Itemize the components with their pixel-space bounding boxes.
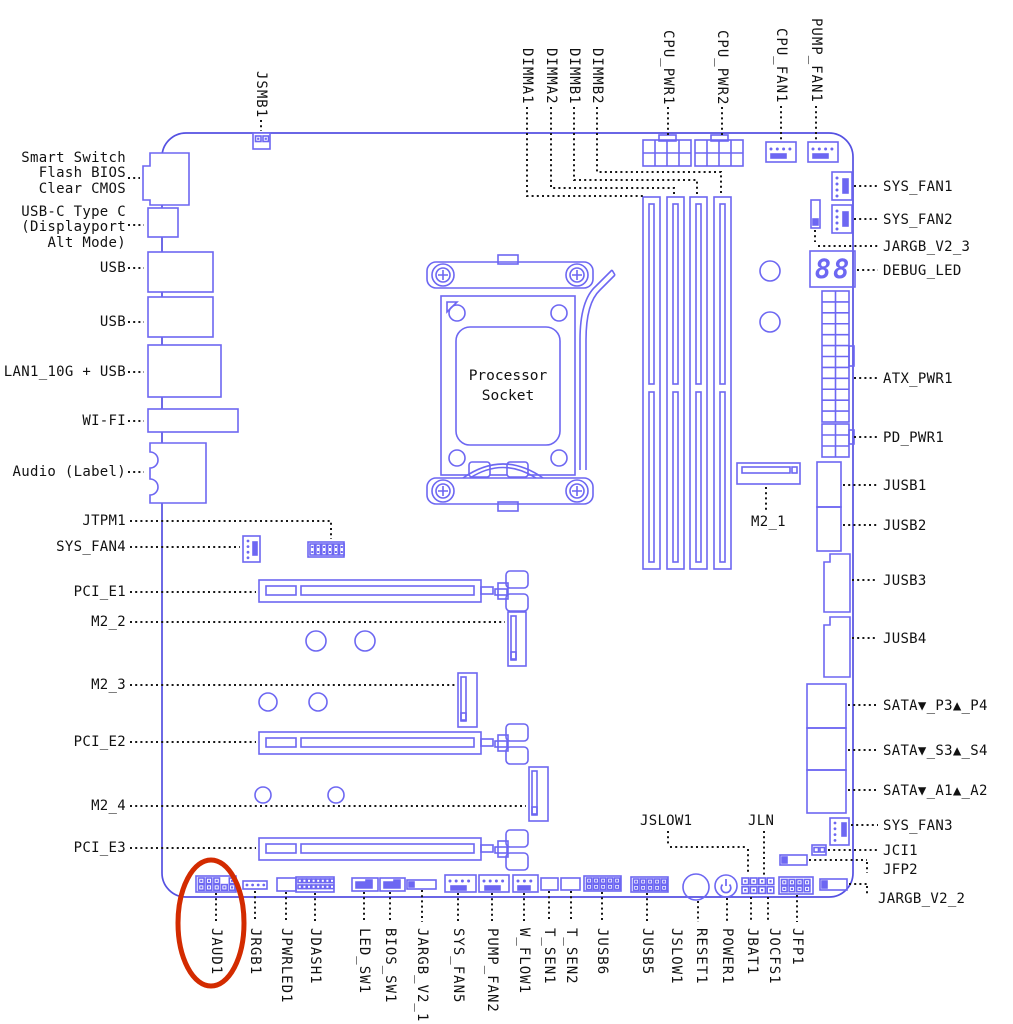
label-led-sw1: LED_SW1 (354, 928, 374, 994)
label-sata-a1-a2: SATA▼_A1▲_A2 (883, 783, 988, 799)
label-jargb-v2-1: JARGB_V2_1 (412, 928, 432, 1022)
label-jslow1-inner: JSLOW1 (640, 813, 692, 829)
label-jdash1: JDASH1 (305, 928, 325, 985)
label-jslow1: JSLOW1 (666, 928, 686, 985)
label-jbat1: JBAT1 (742, 928, 762, 975)
label-jpwrled1: JPWRLED1 (276, 928, 296, 1003)
label-m2-1-inner: M2_1 (751, 514, 786, 530)
label-jtpm1: JTPM1 (0, 514, 126, 529)
label-sys-fan3: SYS_FAN3 (883, 818, 953, 834)
label-t-sen2: T_SEN2 (561, 928, 581, 985)
label-jfp1: JFP1 (787, 928, 807, 966)
label-debug-led: DEBUG_LED (883, 263, 962, 279)
label-bios-sw1: BIOS_SW1 (380, 928, 400, 1003)
label-m2-4: M2_4 (0, 799, 126, 814)
label-jargb-v2-2: JARGB_V2_2 (878, 891, 965, 907)
label-power1: POWER1 (717, 928, 737, 985)
label-t-sen1: T_SEN1 (539, 928, 559, 985)
label-w-flow1: W_FLOW1 (514, 928, 534, 994)
label-jusb1: JUSB1 (883, 478, 927, 494)
label-pci-e2: PCI_E2 (0, 735, 126, 750)
label-jfp2: JFP2 (883, 862, 918, 878)
processor-socket-label: ProcessorSocket (441, 366, 575, 406)
label-jargb-v2-3: JARGB_V2_3 (883, 239, 970, 255)
label-jocfs1: JOCFS1 (764, 928, 784, 985)
label-pci-e1: PCI_E1 (0, 585, 126, 600)
label-pci-e3: PCI_E3 (0, 841, 126, 856)
label-pump-fan1: PUMP_FAN1 (806, 0, 826, 103)
label-dimmb1: DIMMB1 (564, 0, 584, 105)
motherboard-diagram: JSMB1DIMMA1DIMMA2DIMMB1DIMMB2CPU_PWR1CPU… (0, 0, 1013, 1024)
label-jsmb1: JSMB1 (251, 0, 271, 118)
label-wi-fi: WI-FI (0, 414, 126, 429)
label-audio-label: Audio (Label) (0, 465, 126, 480)
label-reset1: RESET1 (691, 928, 711, 985)
label-sys-fan5: SYS_FAN5 (448, 928, 468, 1003)
label-cpu-pwr2: CPU_PWR2 (712, 0, 732, 105)
label-usb: USB (0, 261, 126, 276)
label-sata-s3-s4: SATA▼_S3▲_S4 (883, 743, 988, 759)
label-sys-fan1: SYS_FAN1 (883, 179, 953, 195)
label-m2-3: M2_3 (0, 678, 126, 693)
label-sys-fan4: SYS_FAN4 (0, 540, 126, 555)
label-pd-pwr1: PD_PWR1 (883, 430, 944, 446)
label-dimma2: DIMMA2 (541, 0, 561, 105)
label-cpu-pwr1: CPU_PWR1 (658, 0, 678, 105)
label-m2-2: M2_2 (0, 615, 126, 630)
label-jusb2: JUSB2 (883, 518, 927, 534)
label-usb: USB (0, 315, 126, 330)
label-layer: JSMB1DIMMA1DIMMA2DIMMB1DIMMB2CPU_PWR1CPU… (0, 0, 1013, 1024)
label-smart-switch: Smart SwitchFlash BIOSClear CMOS (0, 151, 126, 197)
label-jaud1: JAUD1 (206, 928, 226, 975)
label-pump-fan2: PUMP_FAN2 (482, 928, 502, 1013)
label-jrgb1: JRGB1 (245, 928, 265, 975)
label-jusb3: JUSB3 (883, 573, 927, 589)
label-dimma1: DIMMA1 (517, 0, 537, 105)
label-lan1-10g-usb: LAN1_10G + USB (0, 365, 126, 380)
label-jusb4: JUSB4 (883, 631, 927, 647)
label-sys-fan2: SYS_FAN2 (883, 212, 953, 228)
label-jusb5: JUSB5 (637, 928, 657, 975)
label-jln-inner: JLN (748, 813, 774, 829)
label-usb-c-type-c: USB-C Type C(DisplayportAlt Mode) (0, 205, 126, 251)
label-dimmb2: DIMMB2 (587, 0, 607, 105)
label-cpu-fan1: CPU_FAN1 (771, 0, 791, 103)
label-atx-pwr1: ATX_PWR1 (883, 371, 953, 387)
label-sata-p3-p4: SATA▼_P3▲_P4 (883, 698, 988, 714)
label-jusb6: JUSB6 (592, 928, 612, 975)
debug-led-value: 88 (812, 254, 854, 285)
label-jci1: JCI1 (883, 843, 918, 859)
